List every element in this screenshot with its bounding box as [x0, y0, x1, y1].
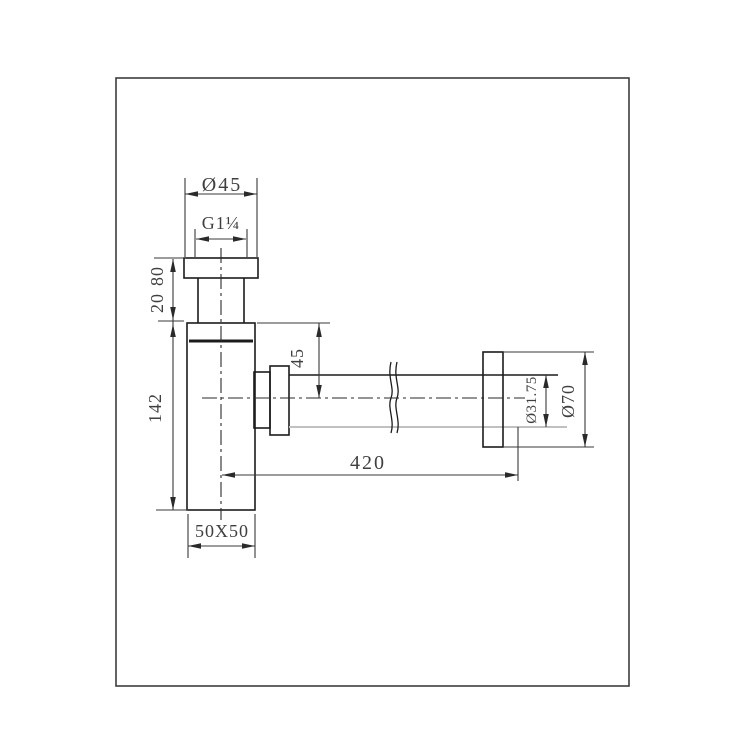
- extension-lines: [154, 178, 594, 558]
- dim-label-body-section: 50X50: [195, 521, 249, 541]
- dim-label-wall-flange-diameter: Ø70: [558, 384, 578, 418]
- dim-label-flange-thickness: 20: [147, 293, 167, 313]
- outlet-nut-outline: [270, 366, 289, 435]
- arrow-left: [188, 543, 201, 549]
- centerlines: [202, 248, 525, 520]
- dim-label-top-diameter: Ø45: [202, 174, 242, 196]
- dim-label-inlet-height: 80: [147, 266, 167, 286]
- arrow-up: [170, 259, 176, 272]
- dim-label-thread-size: G1¼: [202, 213, 241, 233]
- dimension-lines: [173, 194, 585, 546]
- arrow-left: [222, 472, 235, 478]
- arrow-right: [242, 543, 255, 549]
- arrow-up: [170, 324, 176, 337]
- arrow-right: [233, 236, 246, 242]
- dim-label-pipe-length: 420: [350, 452, 386, 474]
- dimension-labels: Ø45 G1¼ 80 20 142 45 420 Ø31.75 Ø70 50X5…: [145, 174, 578, 541]
- arrow-left: [196, 236, 209, 242]
- arrow-down: [170, 307, 176, 320]
- arrow-up: [316, 324, 322, 337]
- technical-drawing-page: Ø45 G1¼ 80 20 142 45 420 Ø31.75 Ø70 50X5…: [0, 0, 750, 750]
- sheet-border: [116, 78, 629, 686]
- arrowheads: [170, 191, 588, 549]
- arrow-right: [244, 191, 257, 197]
- arrow-up: [582, 352, 588, 365]
- arrow-down: [316, 385, 322, 398]
- arrow-up: [543, 375, 549, 388]
- drawing-canvas: Ø45 G1¼ 80 20 142 45 420 Ø31.75 Ø70 50X5…: [0, 0, 750, 750]
- dim-label-outlet-drop: 45: [287, 348, 307, 368]
- arrow-down: [170, 497, 176, 510]
- dim-label-pipe-diameter: Ø31.75: [524, 376, 540, 424]
- arrow-left: [185, 191, 198, 197]
- arrow-right: [505, 472, 518, 478]
- outlet-washer-outline: [254, 372, 270, 428]
- wall-flange-outline: [483, 352, 503, 447]
- arrow-down: [543, 414, 549, 427]
- arrow-down: [582, 434, 588, 447]
- dim-label-body-height: 142: [145, 393, 165, 423]
